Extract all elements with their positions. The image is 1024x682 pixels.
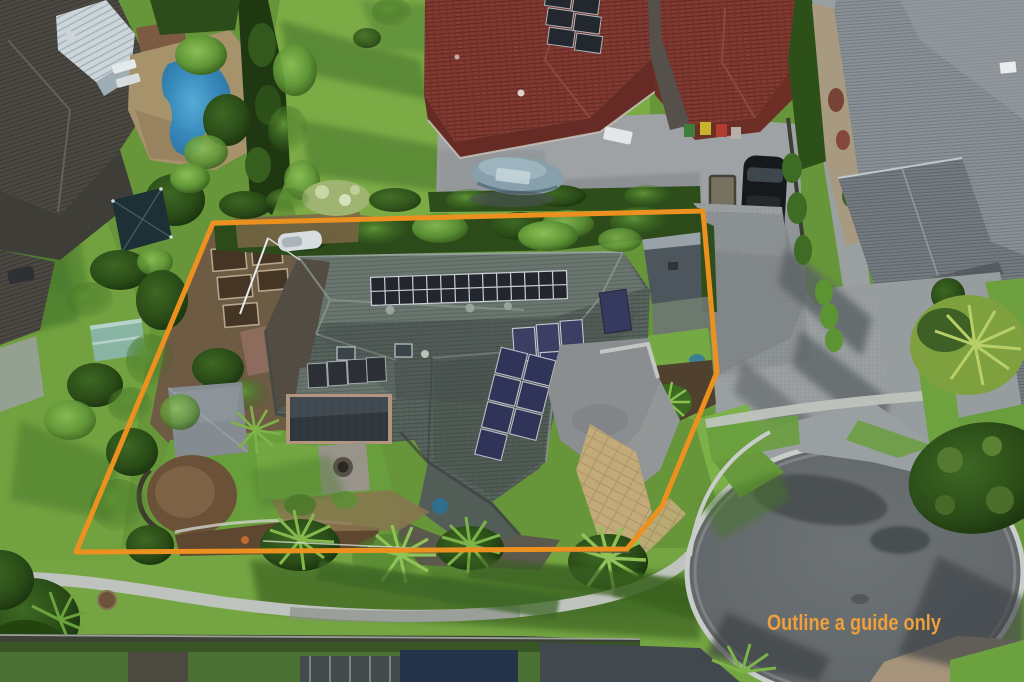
svg-text:Outline a guide only: Outline a guide only xyxy=(767,610,942,635)
